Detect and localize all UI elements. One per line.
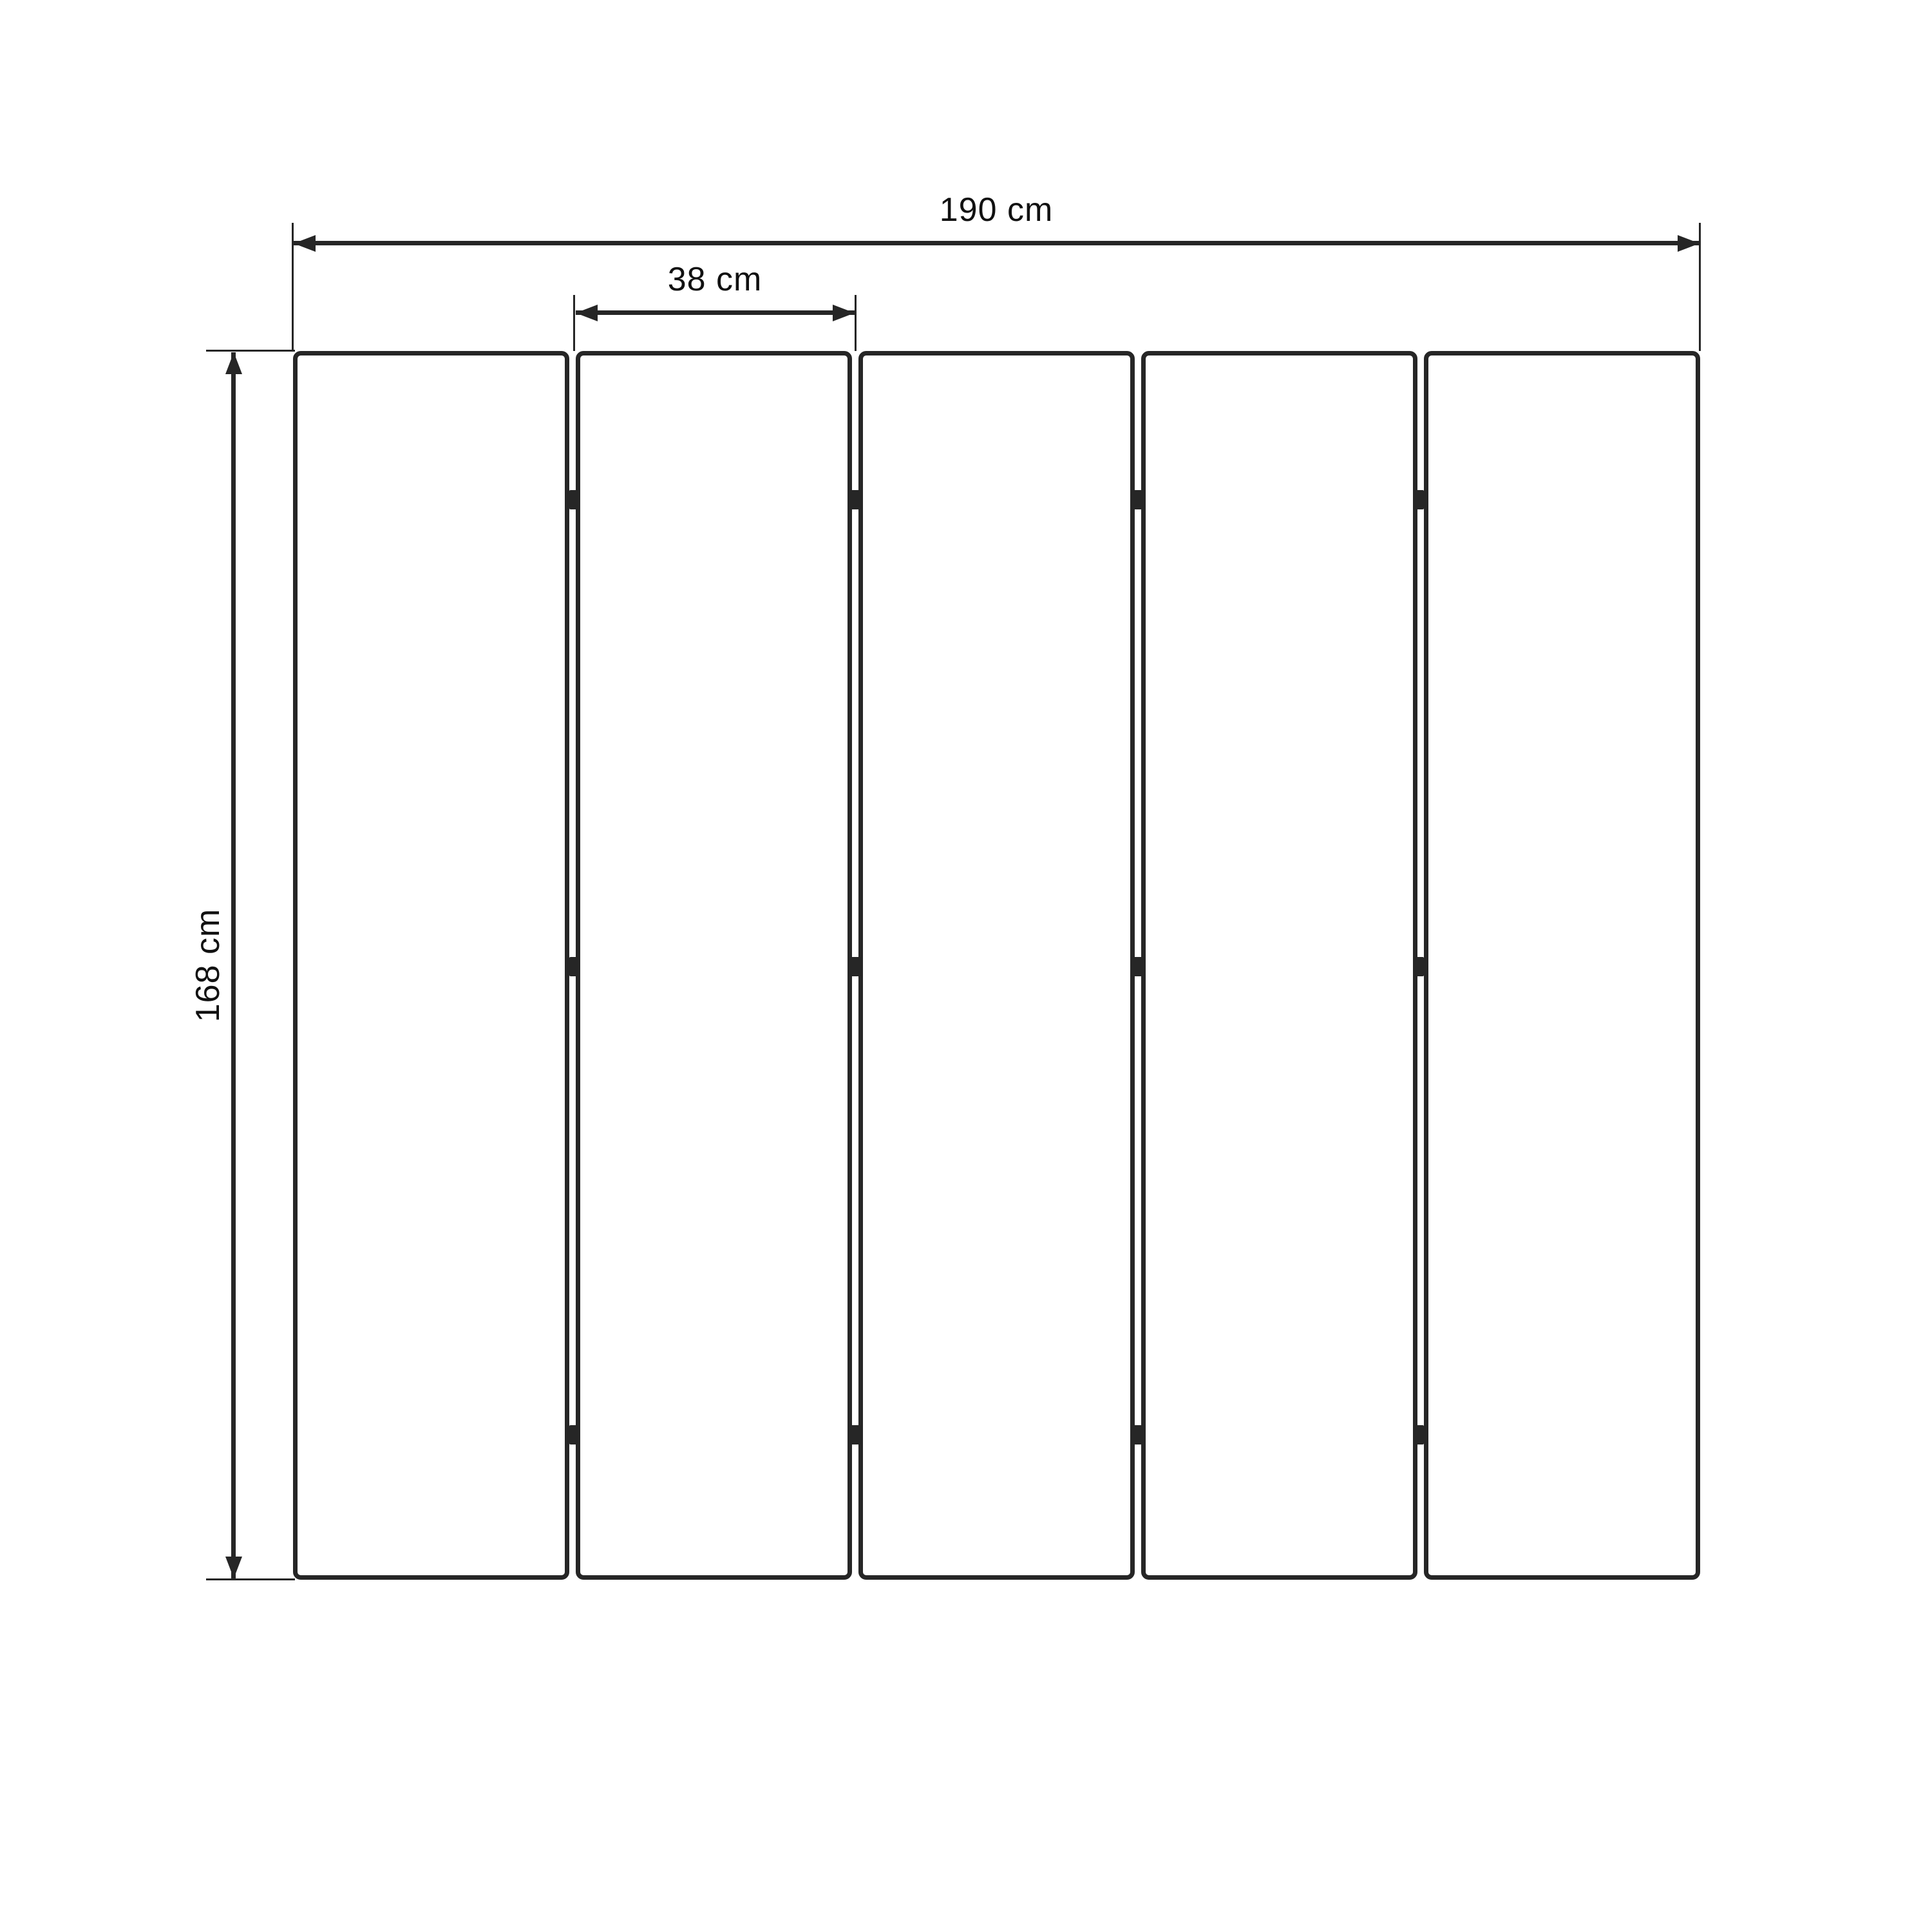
arrow-right-icon [1678, 235, 1700, 252]
hinge [569, 490, 580, 509]
hinge [569, 957, 580, 976]
extension-line [206, 1578, 295, 1580]
hinge [1414, 490, 1424, 509]
hinge [1132, 1425, 1142, 1444]
hinge [1132, 490, 1142, 509]
divider-panel [1424, 351, 1700, 1580]
arrow-up-icon [225, 352, 242, 374]
arrow-left-icon [294, 235, 316, 252]
extension-line [855, 295, 857, 351]
divider-panel [1141, 351, 1417, 1580]
hinge [1414, 957, 1424, 976]
panel-width-dimension-line [576, 310, 855, 315]
hinge [569, 1425, 580, 1444]
hinge [851, 957, 861, 976]
divider-panel [576, 351, 852, 1580]
divider-panel [858, 351, 1135, 1580]
extension-line [206, 350, 295, 352]
arrow-left-icon [576, 305, 598, 321]
panels [293, 351, 1700, 1580]
hinge [851, 1425, 861, 1444]
height-dimension-line [231, 352, 236, 1578]
room-divider-dimension-diagram: 190 cm 38 cm 168 cm [0, 0, 1932, 1932]
arrow-right-icon [833, 305, 855, 321]
hinge [851, 490, 861, 509]
height-label: 168 cm [191, 909, 225, 1023]
extension-line [573, 295, 575, 351]
total-width-dimension-line [294, 241, 1700, 245]
panel-width-label: 38 cm [668, 263, 762, 296]
total-width-label: 190 cm [940, 193, 1054, 227]
arrow-down-icon [225, 1557, 242, 1578]
divider-panel [293, 351, 569, 1580]
hinge [1132, 957, 1142, 976]
hinge [1414, 1425, 1424, 1444]
